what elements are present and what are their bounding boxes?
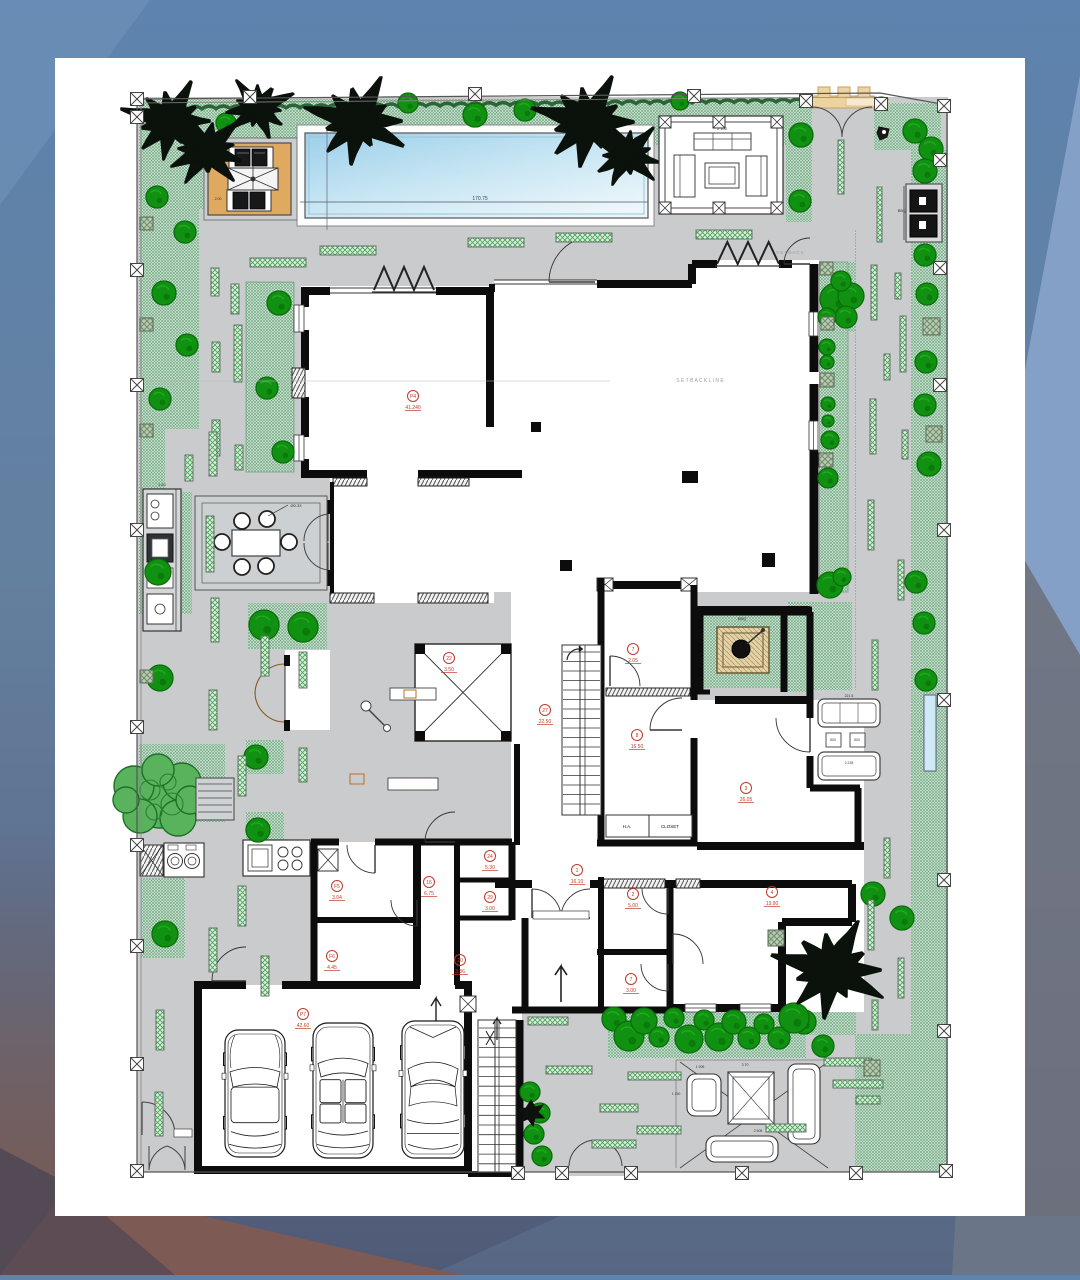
svg-text:3 70: 3 70 — [742, 1063, 749, 1067]
svg-text:3: 3 — [745, 786, 748, 792]
svg-text:500: 500 — [830, 738, 836, 742]
svg-text:2.05: 2.05 — [628, 658, 638, 664]
svg-text:7: 7 — [632, 647, 635, 653]
svg-text:6.75: 6.75 — [424, 891, 434, 897]
svg-text:3.36: 3.36 — [455, 969, 465, 975]
svg-text:22.50: 22.50 — [539, 719, 552, 725]
svg-text:3.00: 3.00 — [485, 906, 495, 912]
svg-text:2.00: 2.00 — [215, 197, 222, 201]
svg-text:1: 1 — [576, 868, 579, 874]
svg-text:27: 27 — [542, 708, 548, 714]
svg-text:26.05: 26.05 — [740, 797, 753, 803]
svg-text:P4: P4 — [410, 394, 416, 400]
svg-text:H.A.: H.A. — [623, 824, 632, 829]
svg-text:221 8: 221 8 — [845, 694, 854, 698]
svg-text:20: 20 — [457, 958, 463, 964]
svg-text:16.10: 16.10 — [571, 879, 584, 885]
svg-text:5.00: 5.00 — [628, 903, 638, 909]
svg-text:1 905: 1 905 — [696, 1065, 705, 1069]
svg-text:29: 29 — [487, 895, 493, 901]
svg-text:BBQ: BBQ — [898, 208, 906, 213]
svg-text:16: 16 — [426, 880, 432, 886]
svg-text:3.04: 3.04 — [332, 895, 342, 901]
svg-text:8: 8 — [636, 733, 639, 739]
svg-text:42.60: 42.60 — [297, 1023, 310, 1029]
svg-text:7: 7 — [630, 977, 633, 983]
svg-text:170.75: 170.75 — [472, 196, 488, 202]
svg-text:4.45: 4.45 — [327, 965, 337, 971]
svg-text:F: F — [919, 730, 921, 734]
svg-text:5.30: 5.30 — [485, 865, 495, 871]
svg-text:3.00: 3.00 — [626, 988, 636, 994]
svg-text:1.80: 1.80 — [158, 482, 167, 487]
svg-text:4: 4 — [771, 890, 774, 896]
svg-text:F6: F6 — [329, 954, 335, 960]
svg-text:Ø0.33: Ø0.33 — [291, 503, 303, 508]
svg-text:22: 22 — [446, 656, 452, 662]
svg-text:S E T B A C K L I N E: S E T B A C K L I N E — [676, 378, 724, 384]
svg-text:500: 500 — [854, 738, 860, 742]
svg-text:CLOSET: CLOSET — [661, 824, 679, 829]
svg-text:F5: F5 — [334, 884, 340, 890]
svg-text:BBQ: BBQ — [738, 616, 746, 621]
svg-text:2: 2 — [632, 892, 635, 898]
svg-text:2.218: 2.218 — [845, 761, 854, 765]
svg-text:16.50: 16.50 — [631, 744, 644, 750]
svg-text:2 505: 2 505 — [754, 1129, 763, 1133]
svg-text:3.50: 3.50 — [444, 667, 454, 673]
svg-text:13.90: 13.90 — [766, 901, 779, 907]
svg-text:24: 24 — [487, 854, 493, 860]
svg-text:41.240: 41.240 — [405, 405, 421, 411]
svg-text:S E T B A C K: S E T B A C K — [776, 250, 804, 255]
svg-text:P7: P7 — [300, 1012, 306, 1018]
svg-text:2 100: 2 100 — [717, 126, 728, 131]
